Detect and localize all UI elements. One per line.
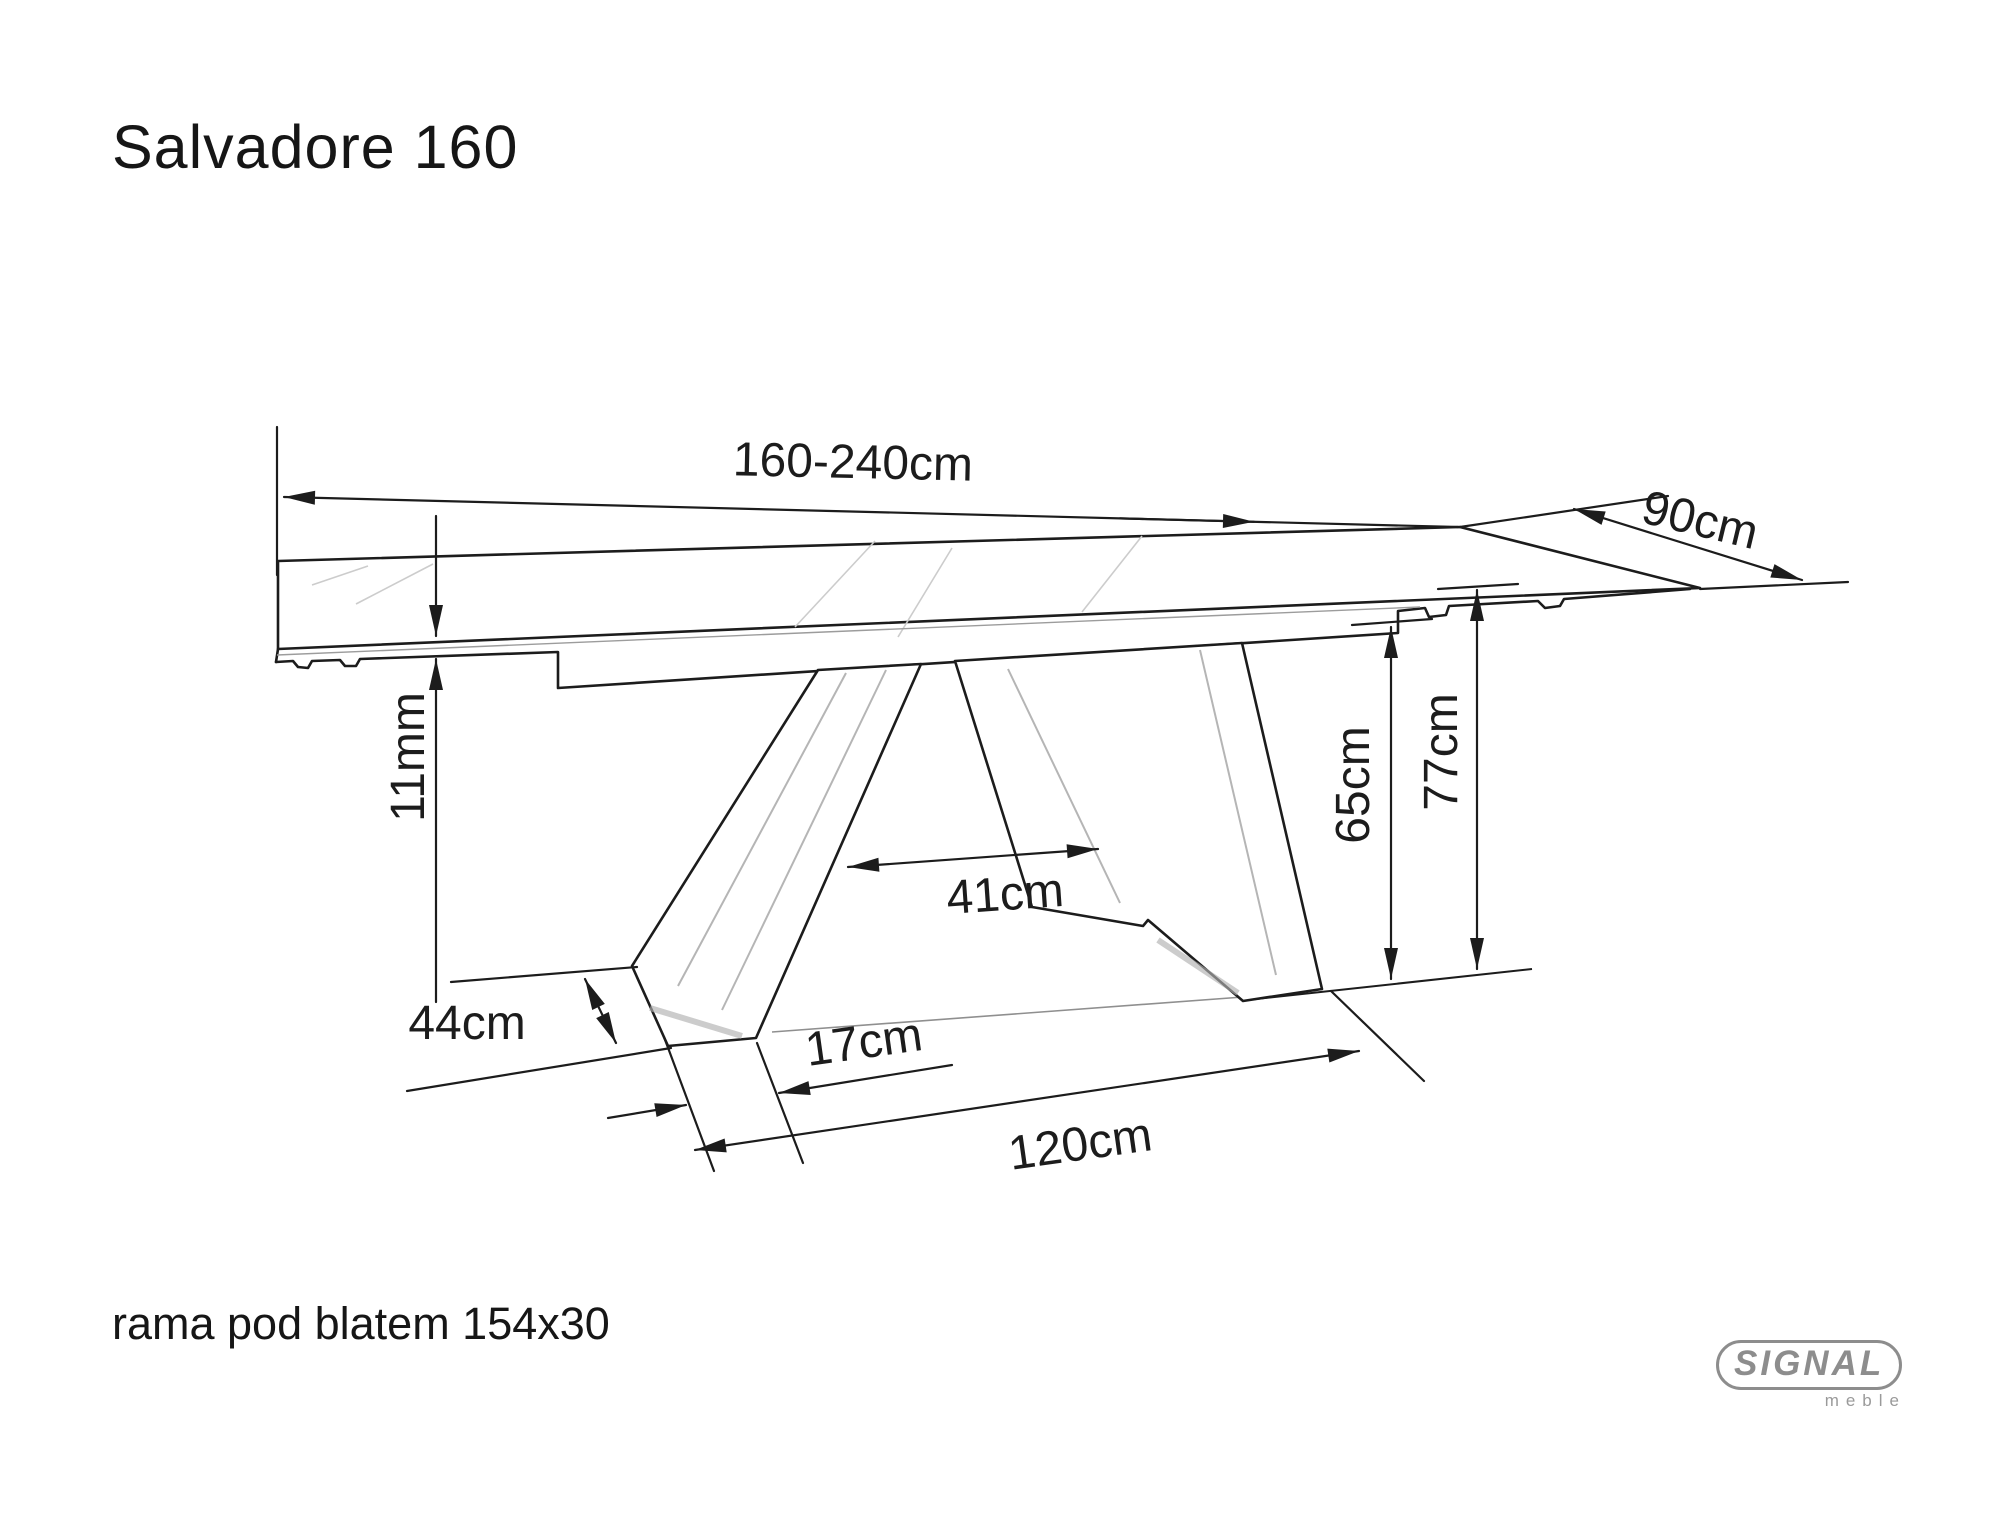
logo-brand-text: SIGNAL xyxy=(1734,1344,1884,1383)
signal-meble-logo: SIGNAL meble xyxy=(1716,1340,1916,1411)
footer-note: rama pod blatem 154x30 xyxy=(112,1298,610,1350)
dimension-base-length-label: 120cm xyxy=(1005,1108,1155,1181)
dimension-top-thickness-label: 11mm xyxy=(382,692,435,822)
logo-badge: SIGNAL xyxy=(1716,1340,1902,1390)
dimension-foot-depth-label: 44cm xyxy=(408,997,525,1050)
logo-subbrand-text: meble xyxy=(1716,1391,1916,1411)
page-title: Salvadore 160 xyxy=(112,112,518,182)
dimension-foot-width: 17cm xyxy=(608,1008,952,1171)
dimension-foot-depth: 44cm xyxy=(407,967,671,1091)
dimension-underframe-height-label: 65cm xyxy=(1327,726,1380,843)
left-leg xyxy=(632,664,921,1046)
dimension-total-height-label: 77cm xyxy=(1415,693,1468,810)
dimension-leg-inner-span-label: 41cm xyxy=(945,864,1066,925)
dimension-base-length: 120cm xyxy=(695,991,1424,1181)
dimension-length-label: 160-240cm xyxy=(732,433,973,491)
right-leg xyxy=(955,643,1322,1001)
dimension-foot-width-label: 17cm xyxy=(802,1008,926,1077)
dimension-total-height: 77cm xyxy=(1415,584,1518,969)
